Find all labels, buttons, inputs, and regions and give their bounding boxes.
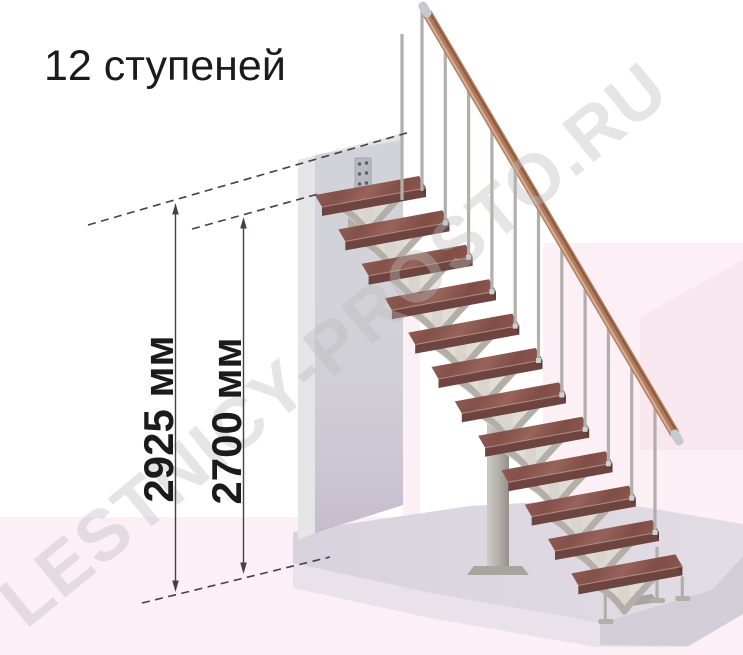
dimension-label-flight: 2700 мм (203, 337, 250, 504)
leg-foot-plate (675, 596, 690, 601)
staircase-diagram-page: LESTNICY-PROSTO.RU 2925 мм 2700 мм 12 ст… (0, 0, 743, 655)
baluster-fitting (629, 496, 634, 501)
baluster-fitting (489, 289, 494, 294)
page-title: 12 ступеней (44, 42, 286, 90)
baluster-fitting (536, 358, 541, 363)
baluster-fitting (606, 461, 611, 466)
baluster-fitting (653, 530, 658, 535)
dimension-label-total: 2925 мм (135, 335, 182, 502)
leg-foot-plate (650, 598, 665, 603)
staircase-diagram: LESTNICY-PROSTO.RU 2925 мм 2700 мм 12 ст… (0, 0, 743, 655)
handrail-top-cap (423, 6, 427, 13)
handrail-end-cap (675, 434, 679, 441)
leg-foot-plate (598, 619, 613, 624)
baluster-fitting (559, 392, 564, 397)
baluster-fitting (583, 427, 588, 432)
wall-mount-bracket (355, 158, 371, 190)
baluster-fitting (513, 324, 518, 329)
support-column-base-plate (467, 566, 529, 575)
